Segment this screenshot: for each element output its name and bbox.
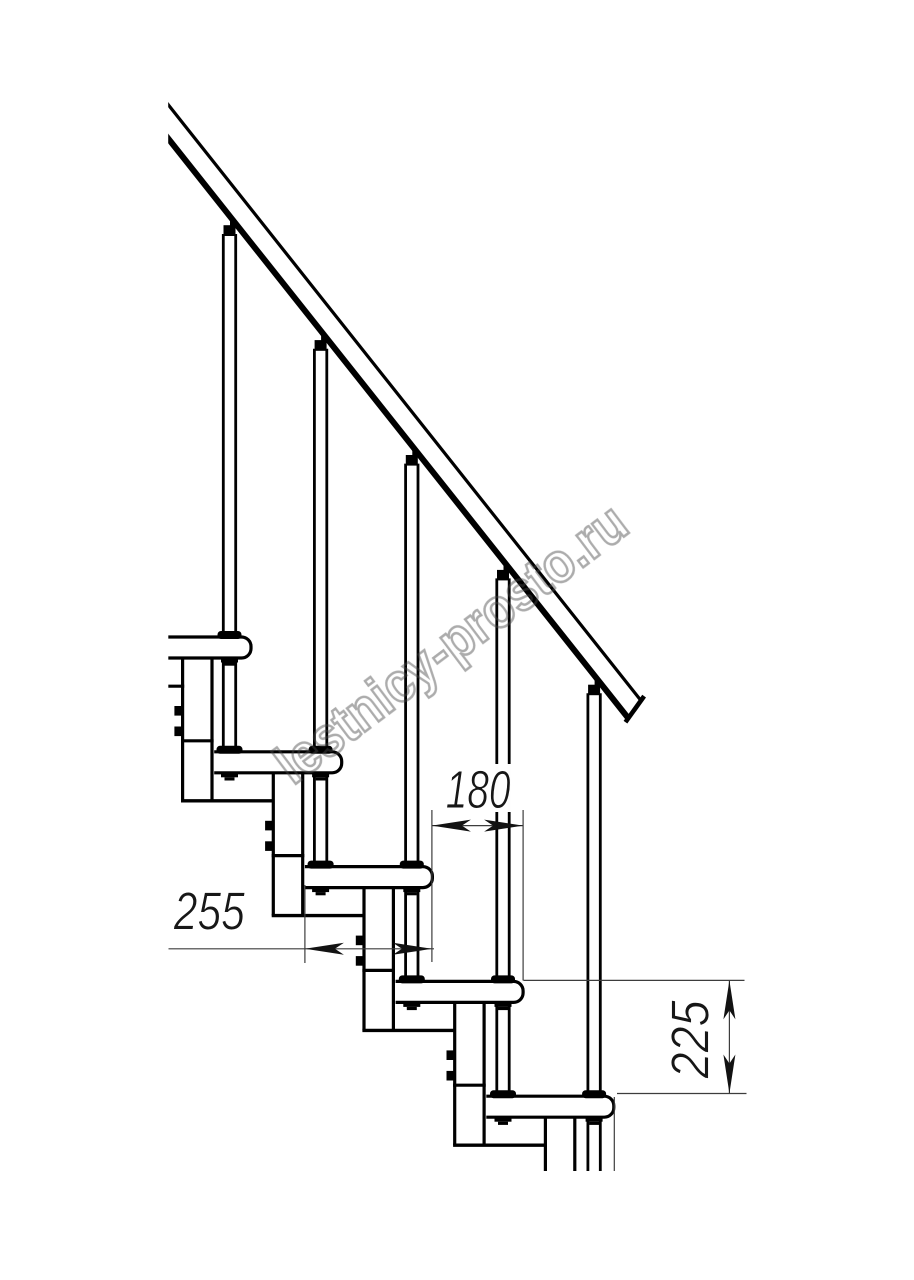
svg-text:180: 180 <box>446 760 511 820</box>
svg-text:225: 225 <box>661 1000 721 1080</box>
svg-text:255: 255 <box>173 882 246 942</box>
